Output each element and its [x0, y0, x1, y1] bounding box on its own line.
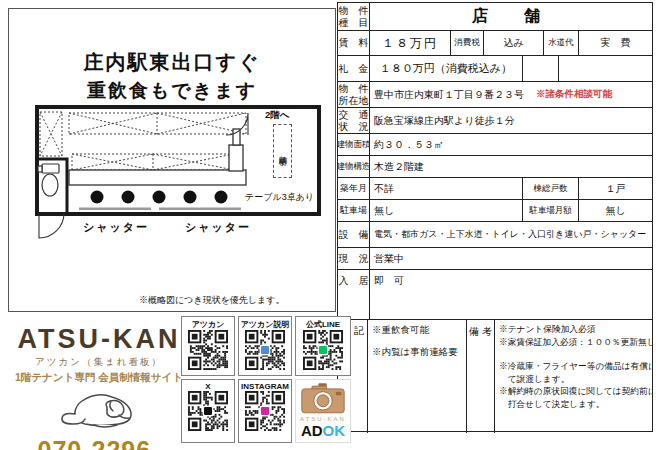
location-label: 物 件 所在地: [338, 82, 370, 107]
movein-value: 即 可: [370, 270, 652, 319]
tax-value: 込み: [484, 31, 544, 55]
parking-fee-value: 無し: [579, 200, 652, 221]
qr-tile-atsukan: アツカン: [181, 316, 235, 376]
tables-note-label: テーブル3卓あり: [245, 191, 314, 204]
headline-line1: 庄内駅東出口すぐ: [9, 47, 335, 77]
type-value: 店 舗: [370, 3, 652, 30]
location-value: 豊中市庄内東町１丁目９番２３号: [374, 88, 524, 102]
qr-code-image: [188, 330, 228, 370]
headline: 庄内駅東出口すぐ 重飲食もできます: [9, 47, 335, 106]
table-row-parking: 駐車場 無し 駐車場月額 無し: [338, 200, 652, 222]
key-money-value: １８０万円（消費税込み）: [370, 56, 523, 81]
access-label: 交 通 状 況: [338, 108, 370, 133]
qr-tile-instagram: INSTAGRAM: [238, 379, 292, 443]
water-label: 水道代: [544, 31, 579, 55]
qr-code-image: [303, 330, 343, 370]
area-label: 建物面積: [338, 134, 370, 155]
table-row-type: 物 件 種 目 店 舗: [338, 3, 652, 31]
water-value: 実 費: [579, 31, 652, 55]
shutter-label-left: シャッター: [83, 220, 149, 235]
remarks-label: 備 考: [467, 320, 495, 433]
type-label: 物 件 種 目: [338, 3, 370, 30]
qr-panel: アツカン アツカン説明 公式LINE X INSTAGRAM: [181, 316, 351, 443]
camera-icon: [300, 383, 346, 415]
table-row-notes-remarks: 特 記 ※重飲食可能 ※内覧は事前連絡要 備 考 ※テナント保険加入必須 ※家賃…: [338, 320, 652, 433]
ad-ok-tile: ATSU-KAN ADOK: [295, 379, 351, 443]
qr-code-image: [188, 391, 228, 431]
status-value: 営業中: [370, 248, 652, 269]
qr-code-image: [245, 391, 285, 431]
storage-chairs-label: 収納椅子: [273, 124, 292, 178]
floorplan-panel: 庄内駅東出口すぐ 重飲食もできます: [8, 8, 336, 312]
table-row-status: 現 況 営業中: [338, 248, 652, 270]
notes-cell: ※重飲食可能 ※内覧は事前連絡要: [368, 320, 467, 433]
table-row-rent: 賃 料 １８万円 消費税 込み 水道代 実 費: [338, 31, 652, 56]
table-row-access: 交 通 状 況 阪急宝塚線庄内駅より徒歩１分: [338, 108, 652, 134]
equipment-value: 電気・都市ガス・上下水道・トイレ・入口引き違い戸・シャッター: [370, 222, 652, 247]
location-note: ※諸条件相談可能: [536, 88, 612, 101]
built-label: 築年月: [338, 178, 370, 199]
brand-tagline: 1階テナント専門 会員制情報サイト: [12, 371, 186, 385]
table-row-built: 築年月 不詳 棟総戸数 １戸: [338, 178, 652, 200]
brand-name: ATSU-KAN: [12, 324, 186, 355]
parking-value: 無し: [370, 200, 523, 221]
qr-tile-x: X: [181, 379, 235, 443]
qr-code-image: [245, 330, 285, 370]
built-value: 不詳: [370, 178, 523, 199]
parking-label: 駐車場: [338, 200, 370, 221]
headline-line2: 重飲食もできます: [9, 77, 335, 106]
access-value: 阪急宝塚線庄内駅より徒歩１分: [370, 108, 652, 133]
table-row-equipment: 設 備 電気・都市ガス・上下水道・トイレ・入口引き違い戸・シャッター: [338, 222, 652, 248]
parking-fee-label: 駐車場月額: [523, 200, 579, 221]
status-label: 現 況: [338, 248, 370, 269]
qr-tile-line: 公式LINE: [295, 316, 351, 376]
tax-label: 消費税: [451, 31, 484, 55]
table-row-location: 物 件 所在地 豊中市庄内東町１丁目９番２３号 ※諸条件相談可能: [338, 82, 652, 108]
ad-ok-logo: ADOK: [301, 422, 345, 439]
table-row-key-money: 礼 金 １８０万円（消費税込み）: [338, 56, 652, 82]
remarks-cell: ※テナント保険加入必須 ※家賃保証加入必須：１００％更新無し ※冷蔵庫・フライヤ…: [495, 320, 652, 433]
plan-disclaimer: ※概略図につき現状を優先します。: [139, 294, 284, 307]
movein-label: 入 居: [338, 270, 370, 319]
rent-label: 賃 料: [338, 31, 370, 55]
structure-value: 木造２階建: [370, 156, 652, 177]
table-row-area: 建物面積 約３０．５３㎡: [338, 134, 652, 156]
units-value: １戸: [579, 178, 652, 199]
to-second-floor-label: 2階へ: [265, 109, 290, 122]
table-row-structure: 建物構造 木造２階建: [338, 156, 652, 178]
property-table: 物 件 種 目 店 舗 賃 料 １８万円 消費税 込み 水道代 実 費 礼 金 …: [337, 2, 653, 432]
structure-label: 建物構造: [338, 156, 370, 177]
brand-block: ATSU-KAN アツカン（集まれ看板） 1階テナント専門 会員制情報サイト 0…: [12, 324, 186, 450]
equipment-label: 設 備: [338, 222, 370, 247]
table-row-movein: 入 居 即 可: [338, 270, 652, 320]
qr-tile-atsukan-setsumei: アツカン説明: [238, 316, 292, 376]
key-money-label: 礼 金: [338, 56, 370, 81]
sleeping-dog-illustration: [49, 385, 149, 431]
phone-number: 070-2296-8188: [12, 436, 186, 450]
rent-value: １８万円: [370, 31, 451, 55]
units-label: 棟総戸数: [523, 178, 579, 199]
flyer-sheet: 庄内駅東出口すぐ 重飲食もできます: [0, 0, 660, 450]
shutter-label-right: シャッター: [185, 220, 251, 235]
area-value: 約３０．５３㎡: [370, 134, 652, 155]
brand-subtitle: アツカン（集まれ看板）: [12, 356, 186, 369]
